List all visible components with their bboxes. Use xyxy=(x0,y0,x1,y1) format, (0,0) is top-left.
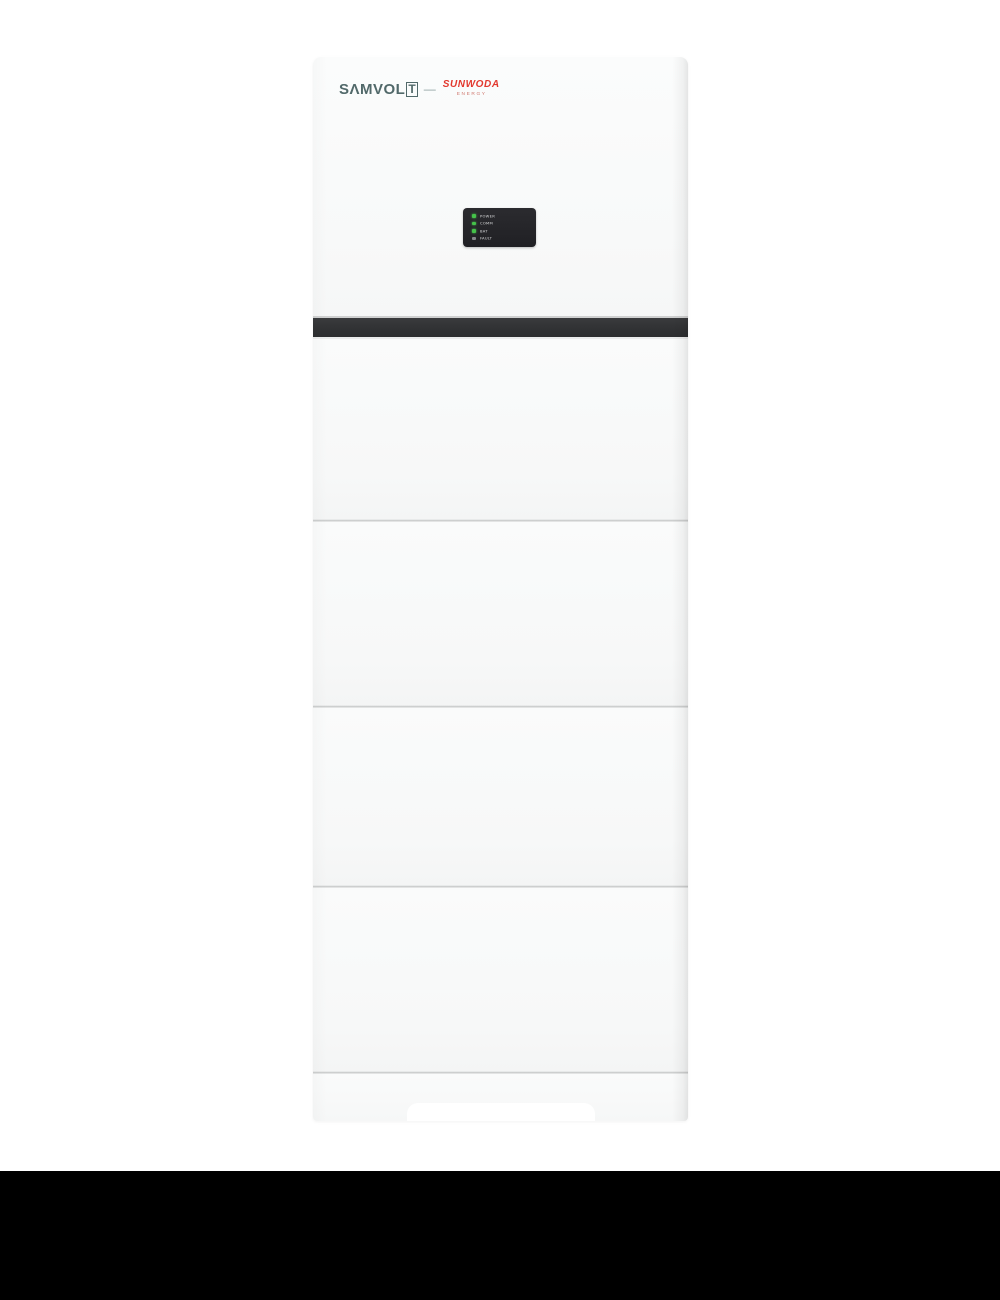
led-status-panel: POWER COMM BAT FAULT xyxy=(463,208,536,247)
fault-led-label: FAULT xyxy=(480,236,492,240)
sunwoda-logo: SUNWODA ENERGY xyxy=(443,80,500,98)
bat-led-icon xyxy=(472,229,476,233)
bat-led-label: BAT xyxy=(480,229,488,233)
led-row-bat: BAT xyxy=(472,228,536,234)
battery-module-1 xyxy=(313,339,688,519)
base-section xyxy=(313,1074,688,1121)
power-led-icon xyxy=(472,214,476,218)
comm-led-icon xyxy=(472,222,476,226)
bottom-black-bar xyxy=(0,1171,1000,1300)
battery-module-3 xyxy=(313,708,688,885)
battery-module-2 xyxy=(313,522,688,705)
samvolt-logo: SΛMVOL xyxy=(339,82,405,97)
sunwoda-logo-text: SUNWODA xyxy=(443,80,500,90)
led-row-power: POWER xyxy=(472,213,536,219)
dark-accent-band xyxy=(313,316,688,339)
energy-storage-tower: SΛMVOL T — SUNWODA ENERGY POWER COMM BAT xyxy=(313,57,688,1121)
power-led-label: POWER xyxy=(480,214,495,218)
base-feet-notch xyxy=(407,1103,595,1121)
brand-separator-dash: — xyxy=(424,83,436,95)
led-row-comm: COMM xyxy=(472,221,536,227)
led-row-fault: FAULT xyxy=(472,236,536,242)
battery-module-4 xyxy=(313,888,688,1071)
inverter-top-section: SΛMVOL T — SUNWODA ENERGY POWER COMM BAT xyxy=(313,57,688,316)
comm-led-label: COMM xyxy=(480,221,493,225)
brand-logo-row: SΛMVOL T — SUNWODA ENERGY xyxy=(339,80,500,98)
samvolt-logo-boxed-letter: T xyxy=(406,82,417,97)
fault-led-icon xyxy=(472,237,476,241)
sunwoda-energy-subtext: ENERGY xyxy=(456,92,486,97)
